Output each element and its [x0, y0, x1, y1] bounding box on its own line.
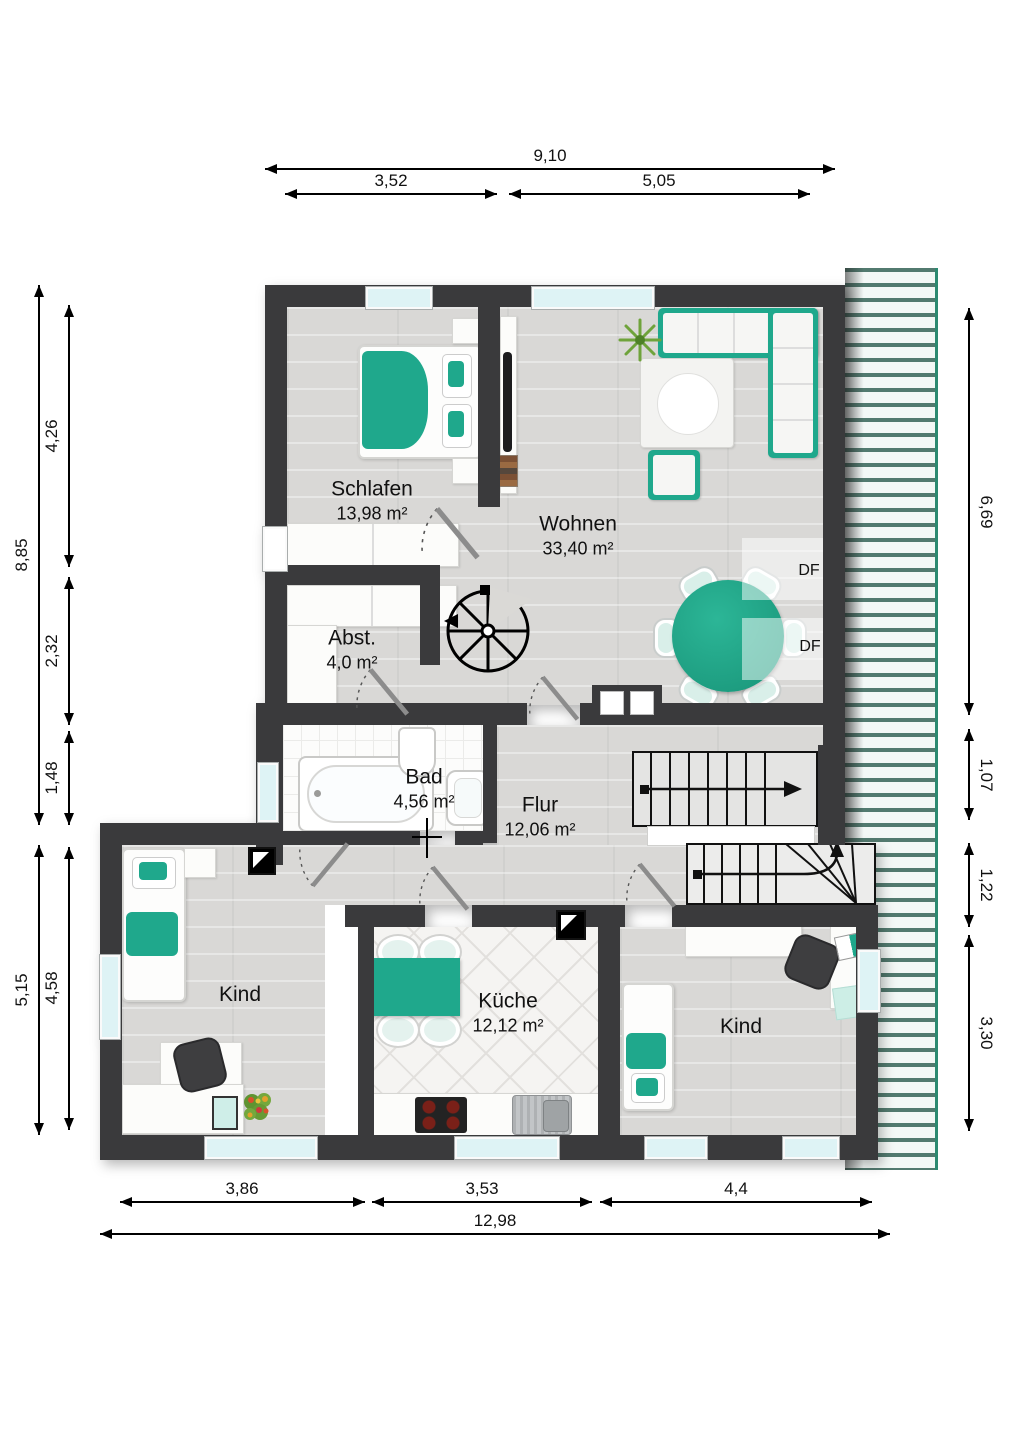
chimney-icon: [248, 847, 276, 875]
tablet: [212, 1096, 238, 1130]
coffee-table: [640, 358, 734, 448]
dimension-line: [968, 843, 970, 927]
dimension-line: [968, 729, 970, 820]
single-bed: [122, 848, 186, 1002]
dimension-line: [38, 845, 40, 1135]
dimension-label: 3,30: [976, 1016, 996, 1049]
window: [100, 955, 120, 1039]
room-name: Küche: [472, 989, 543, 1015]
tv-icon: [503, 352, 512, 452]
roof-window-label: DF: [799, 638, 820, 656]
dimension-label: 1,48: [42, 761, 62, 794]
dimension-label: 1,07: [976, 758, 996, 791]
room-area: 4,0 m²: [326, 652, 377, 675]
kitchen-chair: [376, 1012, 420, 1048]
dimension-label: 1,22: [976, 868, 996, 901]
wall: [483, 725, 497, 843]
dimension-line: [120, 1201, 365, 1203]
window: [263, 527, 287, 571]
sink-basin: [454, 778, 482, 818]
roof-window-label: DF: [798, 562, 819, 580]
spiral-staircase-icon: [436, 583, 540, 679]
floor-plan-page: { "plan": { "rooms": [ {"name": "Schlafe…: [0, 0, 1018, 1440]
dimension-line: [968, 935, 970, 1131]
room-area: 33,40 m²: [539, 538, 617, 561]
closet-strip: [325, 905, 358, 1135]
dimension-line: [68, 577, 70, 725]
wall: [823, 285, 845, 760]
room-area: 13,98 m²: [331, 503, 413, 526]
room-name: Flur: [504, 793, 575, 819]
wall: [345, 905, 425, 927]
dimension-line: [285, 193, 497, 195]
staircase-upper-flight: [632, 751, 818, 827]
wall: [420, 565, 440, 665]
dimension-label: 5,15: [12, 973, 32, 1006]
room-label-bad: Bad 4,56 m²: [393, 765, 454, 814]
armchair-cushion: [653, 455, 695, 495]
room-name: Kind: [219, 982, 261, 1008]
wall: [472, 905, 625, 927]
wall: [265, 565, 422, 585]
dimension-label: 9,10: [533, 146, 566, 166]
dimension-label: 6,69: [976, 495, 996, 528]
sofa-right: [768, 308, 818, 458]
dimension-label: 4,26: [42, 419, 62, 452]
door-kind-right: [625, 855, 680, 910]
glass-block: [600, 691, 624, 715]
nightstand: [452, 318, 480, 344]
dimension-label: 8,85: [12, 538, 32, 571]
dimension-label: 5,05: [642, 171, 675, 191]
dimension-line: [968, 308, 970, 715]
faucet-icon: [314, 790, 321, 797]
wall: [598, 927, 620, 1135]
room-area: 4,56 m²: [393, 791, 454, 814]
dimension-label: 12,98: [474, 1211, 517, 1231]
window: [455, 1137, 559, 1159]
dimension-label: 3,86: [225, 1179, 258, 1199]
dimension-line: [38, 285, 40, 825]
door-kind-left: [298, 840, 353, 895]
room-label-schlafen: Schlafen 13,98 m²: [331, 477, 413, 526]
door-wohnen: [528, 668, 583, 723]
dimension-line: [265, 168, 835, 170]
wall: [478, 307, 500, 507]
room-name: Kind: [720, 1014, 762, 1040]
double-bed: [358, 345, 482, 459]
dimension-line: [100, 1233, 890, 1235]
bed-cushion: [636, 1078, 658, 1096]
window: [532, 287, 654, 309]
chimney-icon: [556, 910, 586, 940]
sink-basin: [543, 1100, 569, 1132]
dimension-label: 2,32: [42, 634, 62, 667]
wall: [856, 905, 878, 1160]
room-name: Bad: [393, 765, 454, 791]
dimension-line: [68, 847, 70, 1130]
window: [858, 950, 880, 1012]
wall: [265, 285, 287, 725]
room-label-wohnen: Wohnen 33,40 m²: [539, 512, 617, 561]
room-area: 12,12 m²: [472, 1015, 543, 1038]
dimension-label: 3,53: [465, 1179, 498, 1199]
door-bad: [426, 818, 428, 858]
room-area: 12,06 m²: [504, 819, 575, 842]
door-bad-tick: [412, 836, 442, 838]
stove-icon: [415, 1097, 467, 1133]
single-bed: [622, 983, 674, 1111]
kitchen-sink: [512, 1095, 572, 1135]
bed-cushion: [448, 411, 464, 437]
room-name: Abst.: [326, 626, 377, 652]
armchair: [648, 450, 700, 500]
door-schlafen: [420, 498, 484, 562]
staircase-lower-flight: [686, 843, 876, 905]
wall: [455, 831, 483, 845]
bed-blanket: [126, 912, 178, 956]
bed-blanket: [362, 351, 428, 449]
room-label-kueche: Küche 12,12 m²: [472, 989, 543, 1038]
nightstand: [452, 458, 480, 484]
room-label-kind-left: Kind: [219, 982, 261, 1008]
bed-cushion: [448, 361, 464, 387]
dimension-line: [68, 305, 70, 567]
dimension-line: [372, 1201, 592, 1203]
wall: [818, 745, 845, 845]
bed-blanket: [626, 1033, 666, 1069]
dimension-label: 4,58: [42, 971, 62, 1004]
window: [258, 763, 278, 822]
coffee-table-top: [657, 373, 719, 435]
dimension-line: [68, 731, 70, 825]
kitchen-table: [368, 958, 460, 1016]
window: [783, 1137, 839, 1159]
kitchen-chair: [418, 1012, 462, 1048]
wall: [358, 905, 374, 1135]
room-name: Schlafen: [331, 477, 413, 503]
wall: [672, 905, 878, 927]
room-label-kind-right: Kind: [720, 1014, 762, 1040]
room-name: Wohnen: [539, 512, 617, 538]
flower-plant-icon: [238, 1088, 278, 1128]
window: [205, 1137, 317, 1159]
dimension-line: [600, 1201, 872, 1203]
dimension-label: 4,4: [724, 1179, 748, 1199]
sofa-cushions: [773, 313, 813, 453]
door-kueche: [418, 858, 473, 913]
dimension-line: [509, 193, 810, 195]
glass-block: [630, 691, 654, 715]
window: [366, 287, 432, 309]
nightstand: [184, 848, 216, 878]
bed-cushion: [139, 862, 167, 880]
room-label-flur: Flur 12,06 m²: [504, 793, 575, 842]
room-label-abstellraum: Abst. 4,0 m²: [326, 626, 377, 675]
window: [645, 1137, 707, 1159]
plant-icon: [618, 318, 662, 362]
wall: [100, 823, 283, 845]
shelf: [685, 923, 802, 957]
dimension-label: 3,52: [374, 171, 407, 191]
